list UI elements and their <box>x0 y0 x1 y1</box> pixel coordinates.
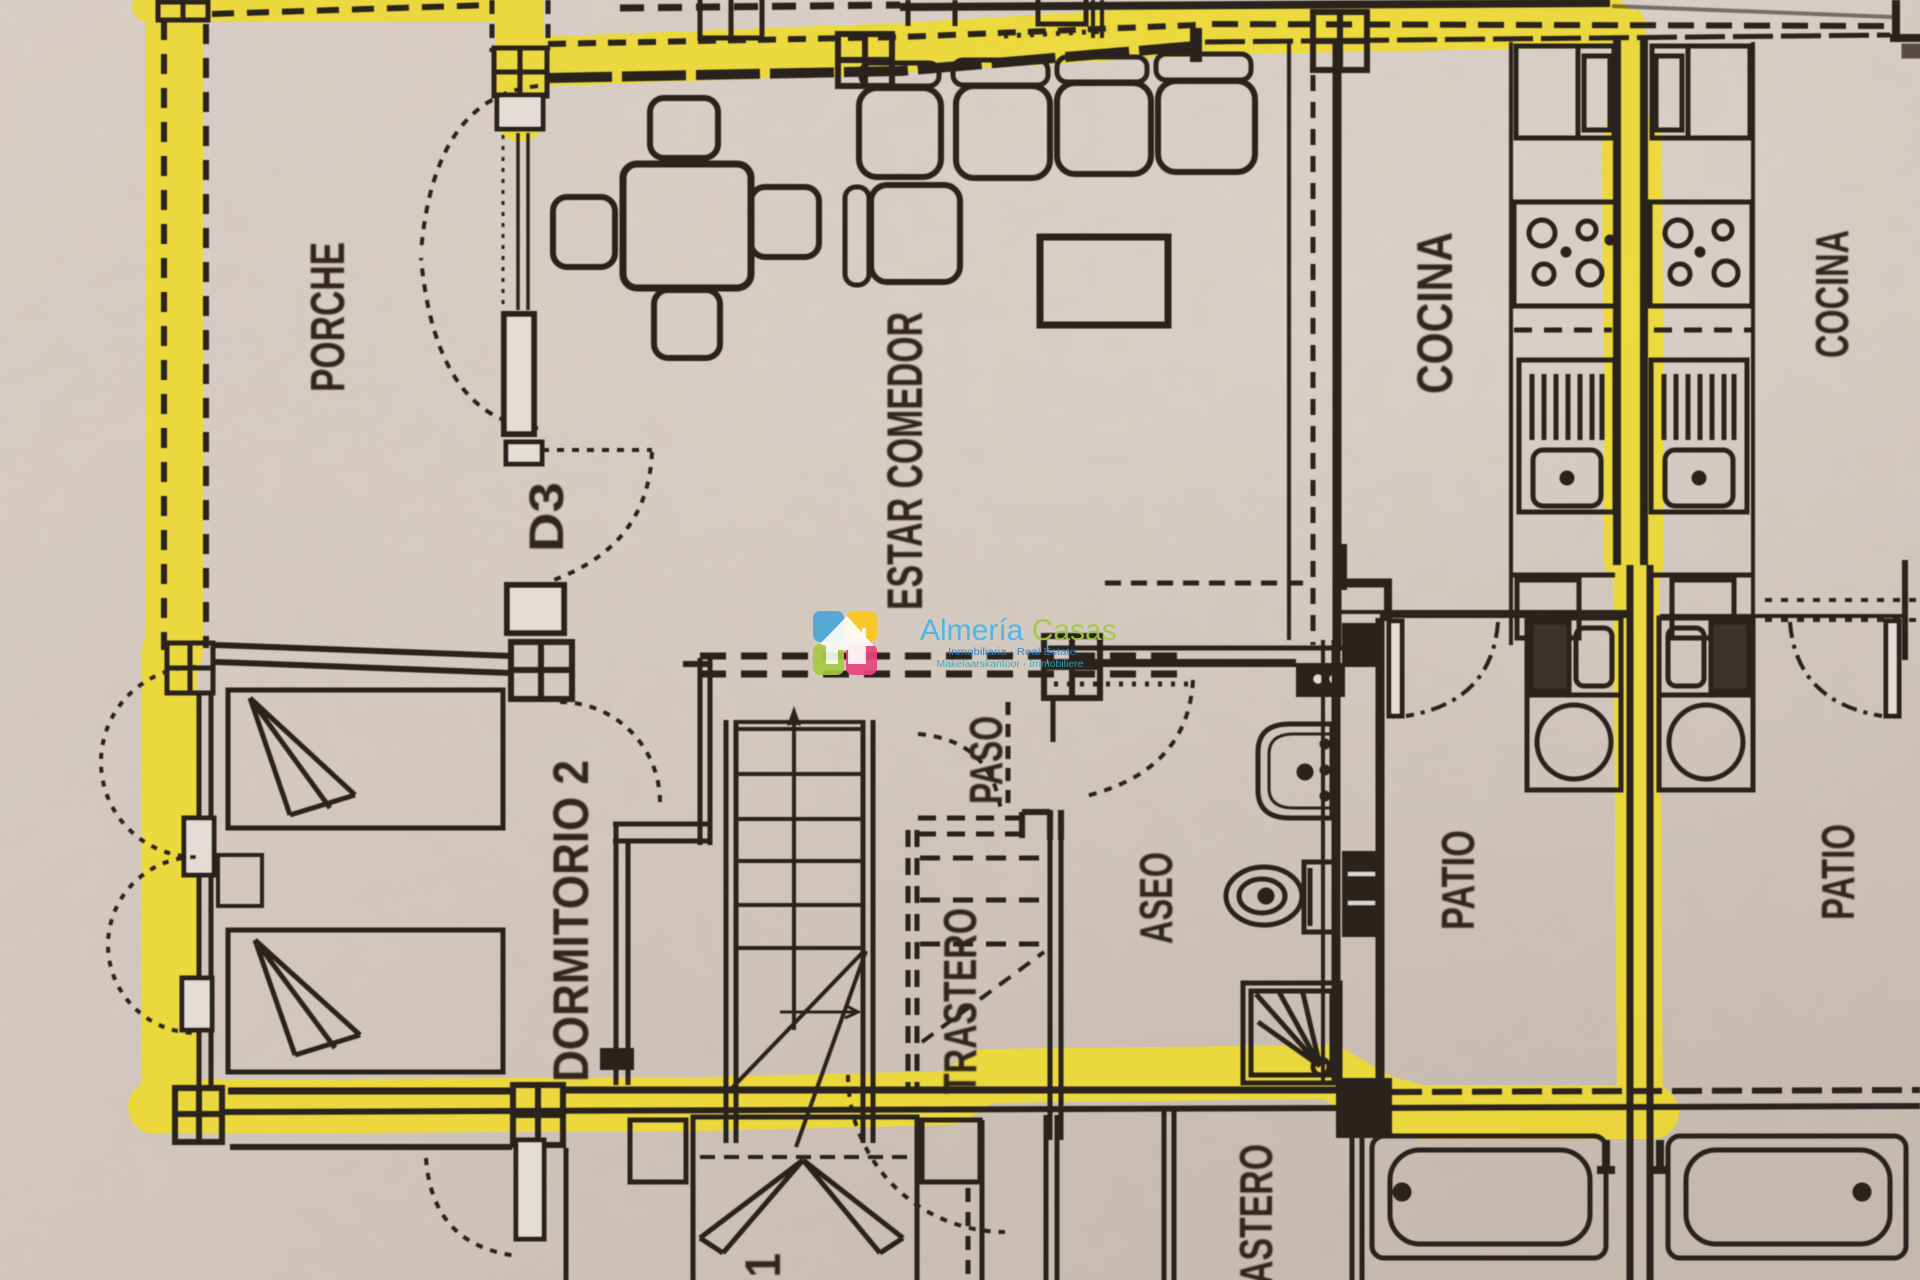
svg-text:PATIO: PATIO <box>1812 824 1864 920</box>
svg-text:PATIO: PATIO <box>1432 830 1484 930</box>
svg-text:TRASTERO: TRASTERO <box>1230 1144 1282 1280</box>
svg-text:DORMITORIO 2: DORMITORIO 2 <box>543 760 599 1082</box>
svg-text:Makelaarskantoor - Immobilie: Makelaarskantoor - Immobiliere <box>936 658 1083 670</box>
svg-text:D3: D3 <box>521 482 574 552</box>
svg-text:Inmobiliaria - Real Estate: Inmobiliaria - Real Estate <box>948 647 1076 658</box>
svg-text:DORMITORIO 1: DORMITORIO 1 <box>735 1253 791 1280</box>
svg-text:COCINA: COCINA <box>1407 232 1463 394</box>
svg-text:ESTAR COMEDOR: ESTAR COMEDOR <box>877 312 933 610</box>
svg-text:ASEO: ASEO <box>1130 852 1182 944</box>
svg-text:Almería Casas: Almería Casas <box>920 614 1117 647</box>
svg-text:TRASTERO: TRASTERO <box>934 908 986 1094</box>
svg-text:PASO: PASO <box>960 716 1012 804</box>
svg-text:PORCHE: PORCHE <box>302 242 355 392</box>
svg-text:COCINA: COCINA <box>1806 230 1858 358</box>
